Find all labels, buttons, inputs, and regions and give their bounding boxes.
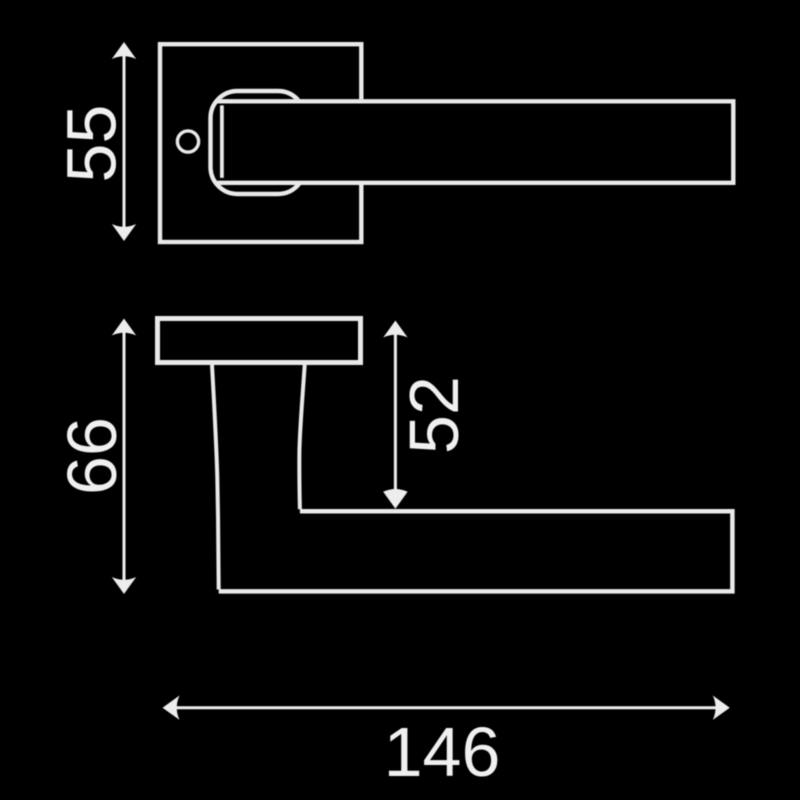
svg-text:55: 55 xyxy=(53,105,131,183)
svg-text:52: 52 xyxy=(395,376,473,454)
svg-text:66: 66 xyxy=(53,417,131,495)
svg-text:146: 146 xyxy=(384,713,501,791)
